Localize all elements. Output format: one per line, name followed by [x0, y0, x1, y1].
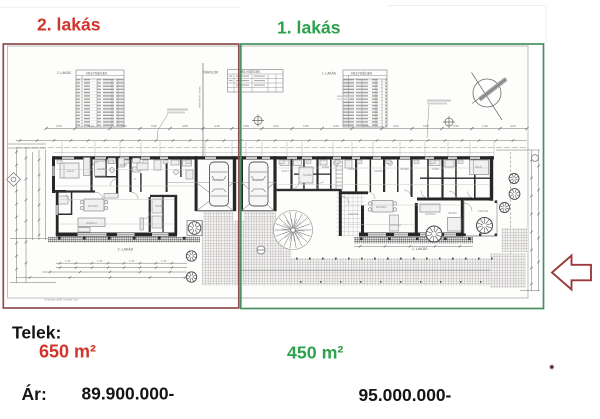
svg-text:HELYISÉGEK: HELYISÉGEK	[86, 70, 108, 75]
svg-text:SZOBA: SZOBA	[97, 167, 106, 171]
svg-text:3,50: 3,50	[453, 124, 459, 128]
svg-text:1,50: 1,50	[129, 259, 135, 263]
svg-text:HELYISÉGEK: HELYISÉGEK	[351, 70, 373, 75]
svg-text:3,55: 3,55	[243, 124, 249, 128]
svg-text:1. LAKÁS: 1. LAKÁS	[322, 72, 336, 76]
svg-text:3,55: 3,55	[56, 124, 62, 128]
svg-text:Telek:: Telek:	[12, 323, 61, 343]
svg-text:450 m²: 450 m²	[287, 343, 343, 363]
svg-text:SZOBA: SZOBA	[303, 173, 312, 177]
svg-text:3,60: 3,60	[333, 124, 339, 128]
svg-text:3,55: 3,55	[423, 124, 429, 128]
svg-text:SZOBA: SZOBA	[374, 169, 383, 173]
svg-text:1,50: 1,50	[97, 259, 103, 263]
svg-text:1. LAKÁS: 1. LAKÁS	[412, 247, 428, 251]
svg-text:NAPPALI: NAPPALI	[86, 221, 97, 225]
svg-text:2. LAKÁS: 2. LAKÁS	[118, 247, 134, 251]
svg-text:K.: K.	[134, 177, 137, 181]
svg-text:3,60: 3,60	[393, 124, 399, 128]
svg-text:2. lakás: 2. lakás	[37, 15, 101, 35]
svg-text:SZOBA: SZOBA	[448, 211, 457, 215]
svg-text:1,50: 1,50	[161, 259, 167, 263]
svg-text:HELYISÉGEK: HELYISÉGEK	[240, 69, 261, 74]
svg-text:GARÁZS: GARÁZS	[212, 178, 223, 182]
svg-text:Szabadonálló családi ház: Szabadonálló családi ház	[44, 298, 79, 302]
svg-text:TERASZ: TERASZ	[478, 209, 489, 213]
svg-text:FÜRD: FÜRD	[322, 165, 329, 169]
svg-text:650 m²: 650 m²	[39, 342, 96, 362]
svg-text:TERASZ: TERASZ	[348, 212, 359, 216]
svg-text:3,40: 3,40	[214, 124, 220, 128]
svg-text:3,60: 3,60	[121, 124, 127, 128]
svg-text:NAPPALI: NAPPALI	[425, 212, 436, 216]
svg-text:SZOBA: SZOBA	[155, 204, 164, 208]
svg-text:GARÁZS: GARÁZS	[252, 178, 263, 182]
svg-text:3,85: 3,85	[182, 124, 188, 128]
svg-text:SZOBA: SZOBA	[400, 167, 409, 171]
svg-text:1,50: 1,50	[65, 259, 71, 263]
svg-text:Ár:: Ár:	[22, 383, 47, 404]
svg-text:3,60: 3,60	[151, 124, 157, 128]
svg-text:4,10: 4,10	[88, 124, 94, 128]
svg-text:KAMRA: KAMRA	[348, 167, 357, 171]
svg-text:KONYHA: KONYHA	[390, 223, 401, 227]
svg-text:89.900.000-: 89.900.000-	[82, 384, 175, 404]
svg-text:3,30: 3,30	[482, 124, 488, 128]
svg-text:FÜRD: FÜRD	[432, 167, 439, 171]
svg-text:TÁROLÓK: TÁROLÓK	[203, 70, 219, 75]
svg-text:3,20: 3,20	[510, 124, 516, 128]
svg-text:1. lakás: 1. lakás	[277, 18, 341, 38]
svg-text:3,55: 3,55	[303, 124, 309, 128]
svg-text:telek felező vonala: telek felező vonala	[198, 86, 202, 108]
svg-text:95.000.000-: 95.000.000-	[359, 385, 452, 405]
svg-text:3,60: 3,60	[273, 124, 279, 128]
svg-text:2. LAKÁS: 2. LAKÁS	[57, 71, 71, 75]
svg-text:3,55: 3,55	[363, 124, 369, 128]
